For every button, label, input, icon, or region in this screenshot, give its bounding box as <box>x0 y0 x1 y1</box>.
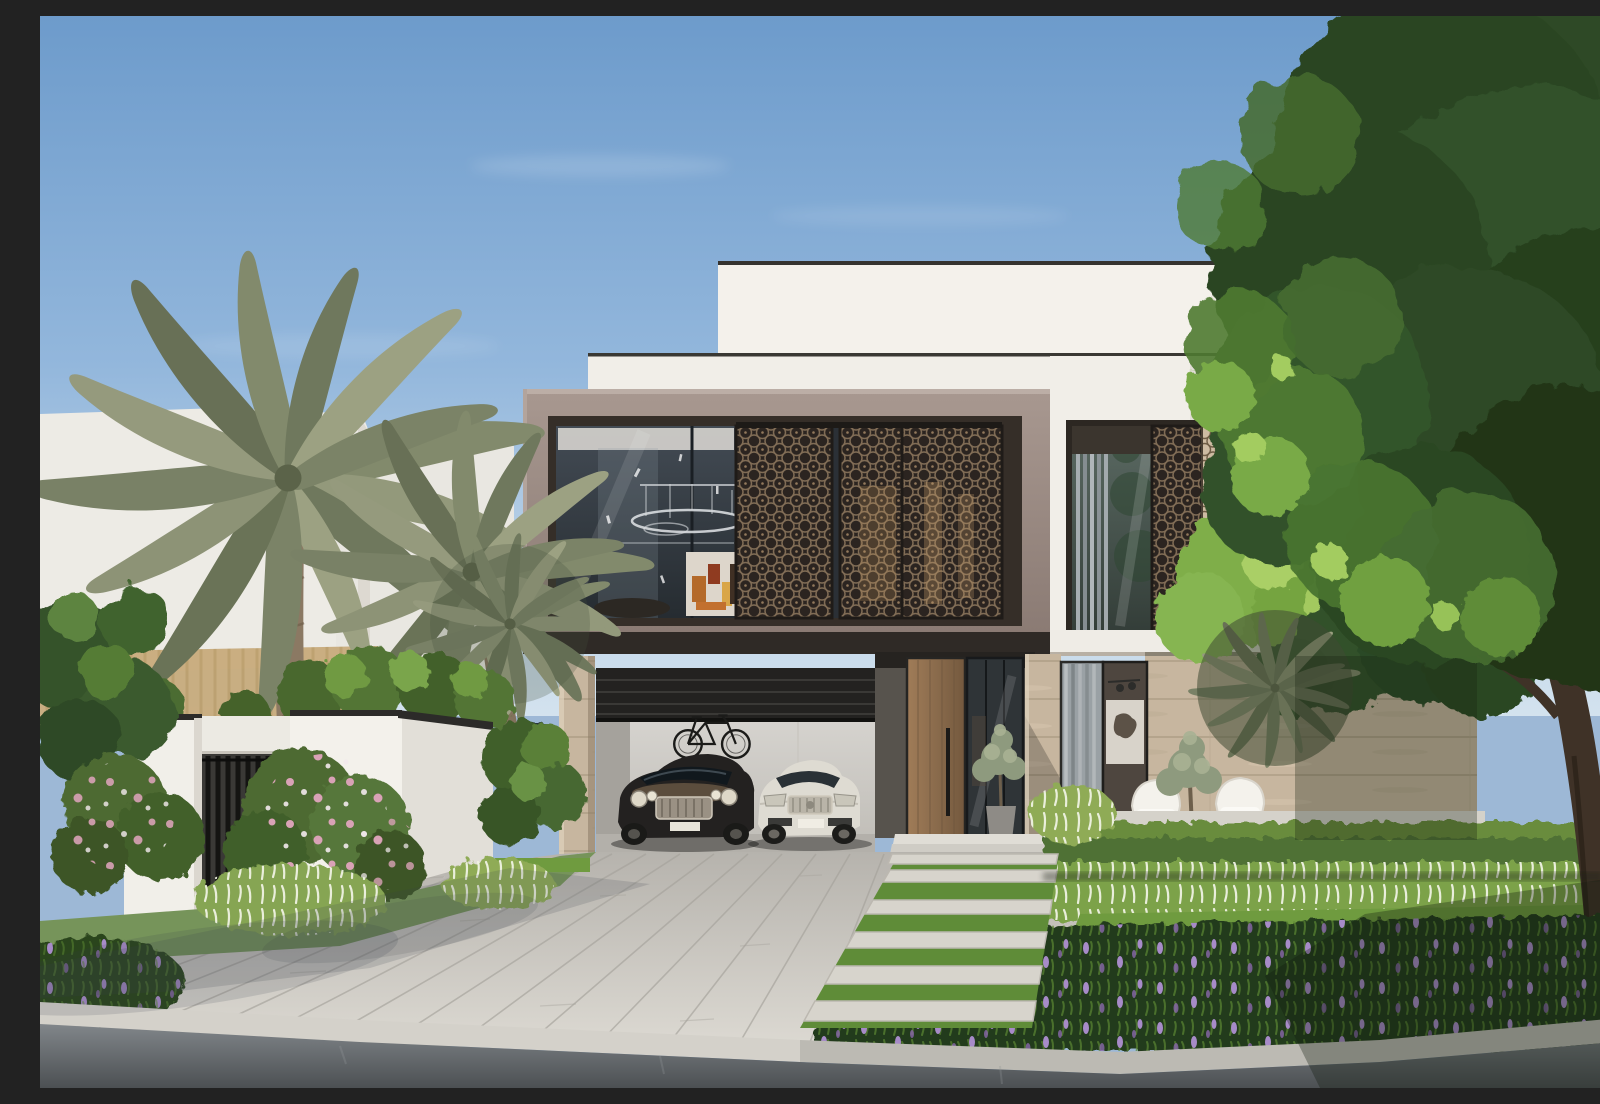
garage <box>596 668 875 854</box>
garage-shutter <box>596 668 875 720</box>
front-door <box>907 658 965 836</box>
entrance <box>875 652 1035 840</box>
interior-artwork <box>686 552 736 616</box>
villa-exterior-render: Modern two-storey villa with mashrabiya … <box>40 16 1600 1088</box>
taupe-box <box>523 389 1050 640</box>
fascia-band <box>523 632 1050 654</box>
entrance-steps <box>890 834 1056 854</box>
mashrabiya-panels <box>736 422 1002 618</box>
roof-parapet <box>718 261 1245 357</box>
